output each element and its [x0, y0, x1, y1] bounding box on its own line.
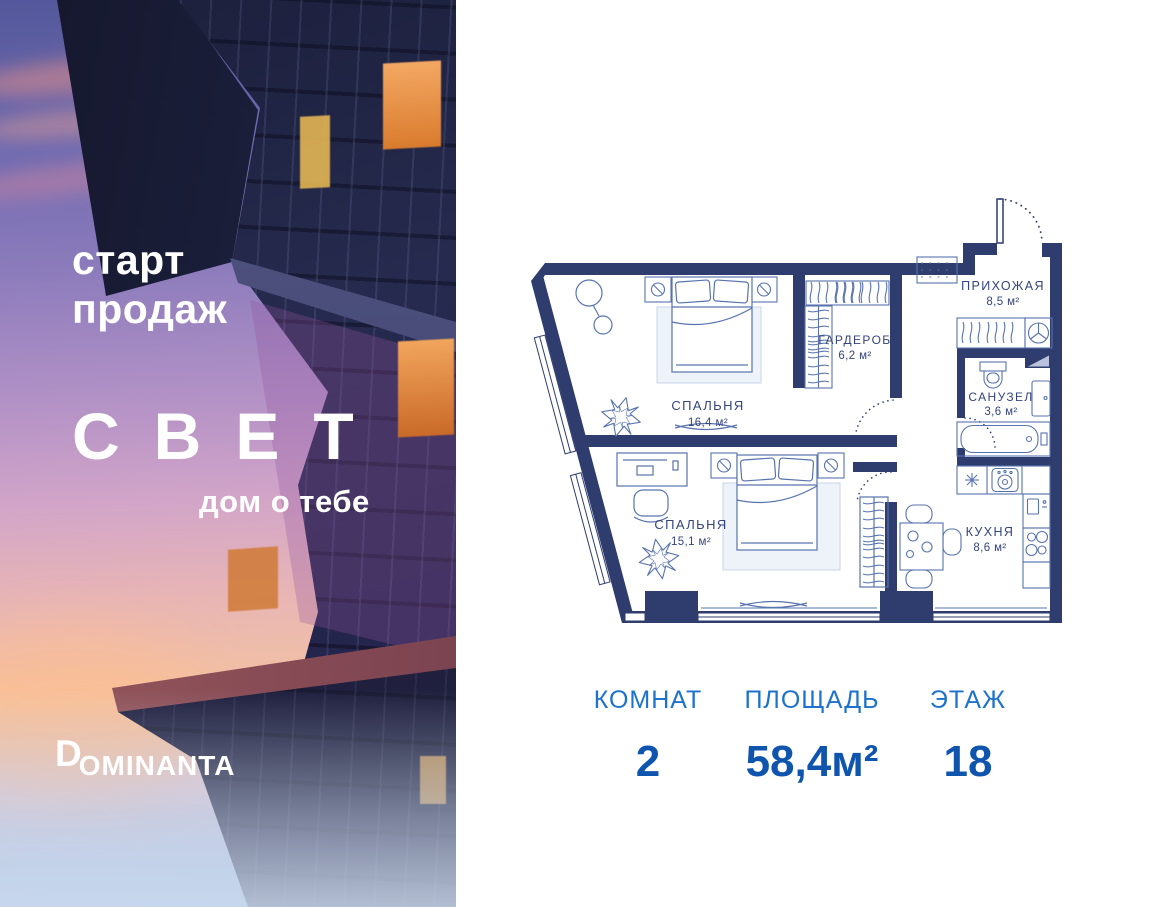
room-label: САНУЗЕЛ [968, 390, 1033, 404]
nightstand-lamp-icon [711, 453, 737, 478]
stat-floor-label: ЭТАЖ [898, 686, 1038, 715]
developer-logo: DOMINANTA [55, 733, 239, 775]
project-tagline: дом о тебе [199, 484, 370, 520]
floorplan: СПАЛЬНЯ 16,4 м² ГАРДЕРОБ 6,2 м² ПРИХОЖАЯ… [525, 195, 1065, 625]
office-chair-icon [634, 490, 668, 516]
stat-floor-value: 18 [898, 737, 1038, 787]
project-name: СВЕТ [72, 398, 388, 474]
stove-icon [992, 469, 1018, 492]
nightstand-lamp-icon [645, 277, 671, 302]
floorplan-svg: СПАЛЬНЯ 16,4 м² ГАРДЕРОБ 6,2 м² ПРИХОЖАЯ… [525, 195, 1065, 625]
room-area: 16,4 м² [688, 417, 728, 429]
developer-logo-rest: OMINANTA [79, 750, 236, 781]
plant-icon [597, 393, 646, 442]
room-label: КУХНЯ [966, 525, 1015, 539]
room-label: ГАРДЕРОБ [818, 333, 891, 347]
stat-area-value: 58,4м² [722, 737, 902, 787]
pendant-lamp-icon [576, 280, 602, 306]
bathroom-furniture [957, 353, 1052, 456]
stat-rooms: КОМНАТ 2 [578, 686, 718, 787]
start-sales-heading: старт продаж [72, 236, 227, 334]
room-area: 8,6 м² [973, 542, 1006, 554]
start-sales-line2: продаж [72, 285, 227, 334]
pendant-lamp-icon [594, 316, 612, 334]
stat-area: ПЛОЩАДЬ 58,4м² [722, 686, 902, 787]
window [534, 335, 610, 585]
interior-door-arcs [855, 400, 995, 502]
chair-icon [906, 505, 932, 523]
coat-rack-icon [957, 318, 1025, 348]
stat-rooms-value: 2 [578, 737, 718, 787]
bedroom1-furniture [576, 277, 777, 441]
room-area: 6,2 м² [838, 350, 871, 362]
room-area: 15,1 м² [671, 536, 711, 548]
room-area: 8,5 м² [986, 296, 1019, 308]
double-bed-icon [737, 455, 817, 550]
bathtub-icon [957, 422, 1050, 456]
stat-floor: ЭТАЖ 18 [898, 686, 1038, 787]
stat-rooms-label: КОМНАТ [578, 686, 718, 715]
room-label: СПАЛЬНЯ [654, 517, 727, 532]
double-bed-icon [672, 277, 752, 372]
building-photo-panel: старт продаж СВЕТ дом о тебе DOMINANTA [0, 0, 456, 907]
chair-icon [906, 570, 932, 588]
entry-door-arc [1000, 199, 1042, 243]
developer-logo-initial: D [55, 733, 82, 774]
curtain-swag-icon [740, 602, 807, 608]
entry-door [997, 199, 1042, 243]
kitchen-sink-icon [965, 473, 979, 487]
nightstand-lamp-icon [818, 453, 844, 478]
room-label: ПРИХОЖАЯ [961, 279, 1045, 293]
kitchen-cabinet [1023, 562, 1050, 588]
nightstand-lamp-icon [751, 277, 777, 302]
room-label: СПАЛЬНЯ [671, 398, 744, 413]
room-area: 3,6 м² [984, 406, 1017, 418]
start-sales-line1: старт [72, 236, 227, 285]
wardrobe-door-arc [855, 400, 896, 441]
chair-icon [943, 529, 961, 555]
toilet-icon [980, 362, 1006, 371]
stat-area-label: ПЛОЩАДЬ [722, 686, 902, 715]
